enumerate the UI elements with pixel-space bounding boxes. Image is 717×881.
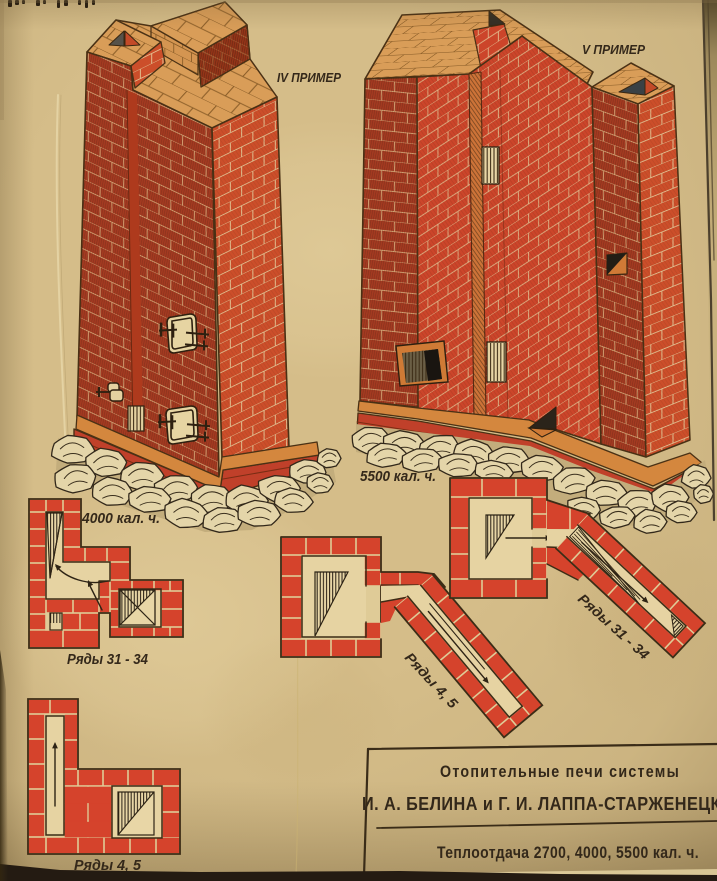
svg-text:4000 кал. ч.: 4000 кал. ч. [81, 510, 160, 527]
svg-text:Ряды 31 - 34: Ряды 31 - 34 [67, 651, 149, 668]
svg-text:Теплоотдача 2700, 4000, 5500 к: Теплоотдача 2700, 4000, 5500 кал. ч. [437, 843, 699, 862]
svg-text:IV ПРИМЕР: IV ПРИМЕР [277, 70, 341, 85]
svg-text:И. А. БЕЛИНА и Г. И. ЛАППА-СТА: И. А. БЕЛИНА и Г. И. ЛАППА-СТАРЖЕНЕЦКО [362, 794, 717, 814]
svg-text:5500 кал. ч.: 5500 кал. ч. [360, 468, 436, 485]
svg-text:Отопительные печи системы: Отопительные печи системы [440, 762, 680, 781]
svg-text:V ПРИМЕР: V ПРИМЕР [582, 42, 645, 57]
